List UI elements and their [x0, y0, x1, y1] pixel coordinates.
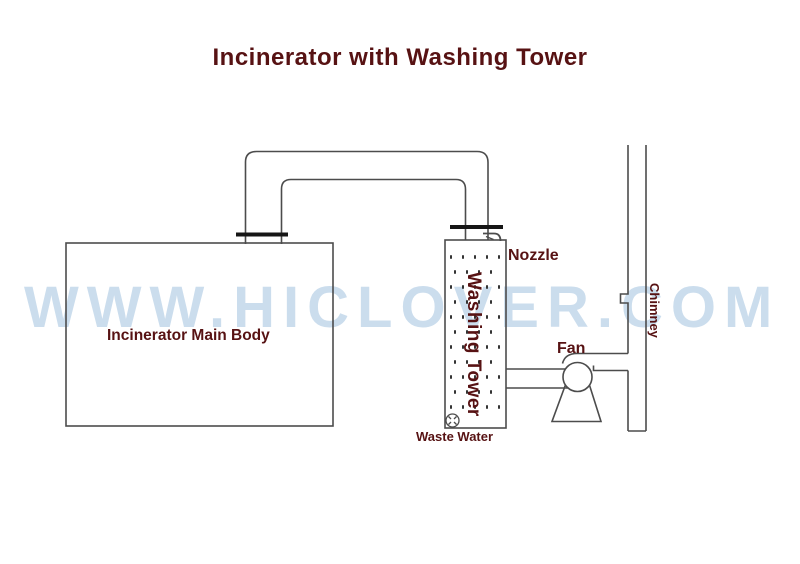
- chimney-label: Chimney: [647, 283, 662, 338]
- nozzle-spray-tick: [486, 237, 494, 240]
- waste-water-label: Waste Water: [416, 429, 493, 444]
- chimney-left-wall: [621, 145, 629, 431]
- washing-tower-label: Washing Tower: [462, 272, 484, 417]
- drain-valve-icon: [446, 414, 459, 427]
- page-title: Incinerator with Washing Tower: [0, 44, 800, 72]
- fan-housing: [563, 363, 592, 392]
- nozzle-label: Nozzle: [508, 247, 559, 265]
- fan-outlet-duct-bottom: [594, 366, 629, 371]
- diagram-page: WWW.HICLOVER.COM: [0, 0, 800, 564]
- incinerator-body-label: Incinerator Main Body: [107, 327, 270, 345]
- diagram-canvas: [0, 0, 800, 564]
- flue-duct-inner: [282, 180, 466, 245]
- fan-label: Fan: [557, 340, 585, 358]
